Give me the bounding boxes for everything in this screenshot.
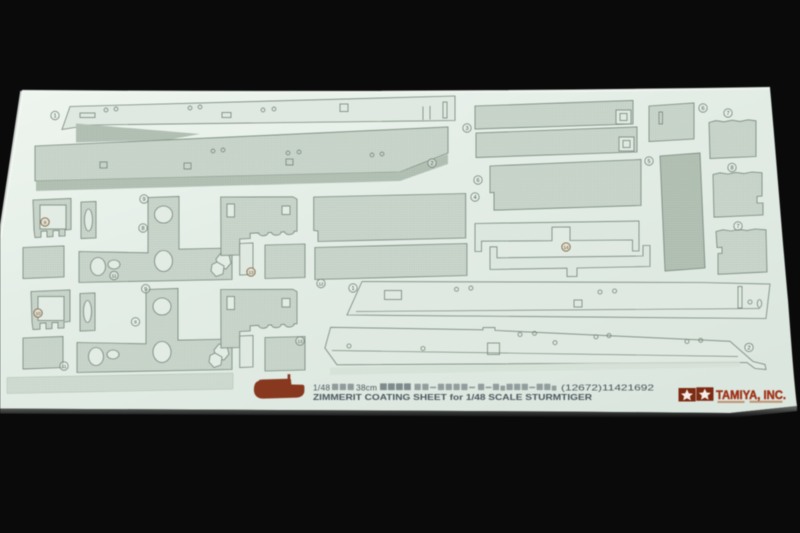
svg-text:11: 11 xyxy=(62,364,67,369)
svg-text:14: 14 xyxy=(563,245,569,250)
svg-text:7: 7 xyxy=(736,224,739,230)
svg-text:12: 12 xyxy=(318,281,324,286)
svg-text:1: 1 xyxy=(53,114,56,120)
svg-text:2: 2 xyxy=(747,346,750,352)
svg-text:ZIMMERIT COATING SHEET for 1/4: ZIMMERIT COATING SHEET for 1/48 SCALE ST… xyxy=(313,392,592,402)
svg-text:8: 8 xyxy=(141,226,144,232)
svg-text:11: 11 xyxy=(112,273,117,278)
svg-text:8: 8 xyxy=(134,320,137,325)
svg-text:2: 2 xyxy=(430,161,433,167)
svg-text:38cm: 38cm xyxy=(356,383,377,393)
svg-text:6: 6 xyxy=(476,178,479,184)
svg-text:3: 3 xyxy=(465,126,468,132)
svg-text:5: 5 xyxy=(647,159,650,165)
svg-text:9: 9 xyxy=(44,220,47,225)
svg-text:1/48: 1/48 xyxy=(313,383,330,393)
svg-text:13: 13 xyxy=(297,339,303,344)
svg-text:8: 8 xyxy=(730,166,733,172)
svg-text:13: 13 xyxy=(248,270,254,275)
svg-text:7: 7 xyxy=(726,111,729,117)
svg-text:1: 1 xyxy=(351,286,354,292)
svg-text:10: 10 xyxy=(35,311,41,316)
svg-text:6: 6 xyxy=(701,106,704,112)
svg-text:9: 9 xyxy=(142,197,145,203)
svg-text:9: 9 xyxy=(144,287,147,293)
svg-text:TAMIYA, INC.: TAMIYA, INC. xyxy=(716,388,786,402)
svg-text:(12672)11421692: (12672)11421692 xyxy=(561,383,654,393)
svg-text:4: 4 xyxy=(473,195,476,201)
